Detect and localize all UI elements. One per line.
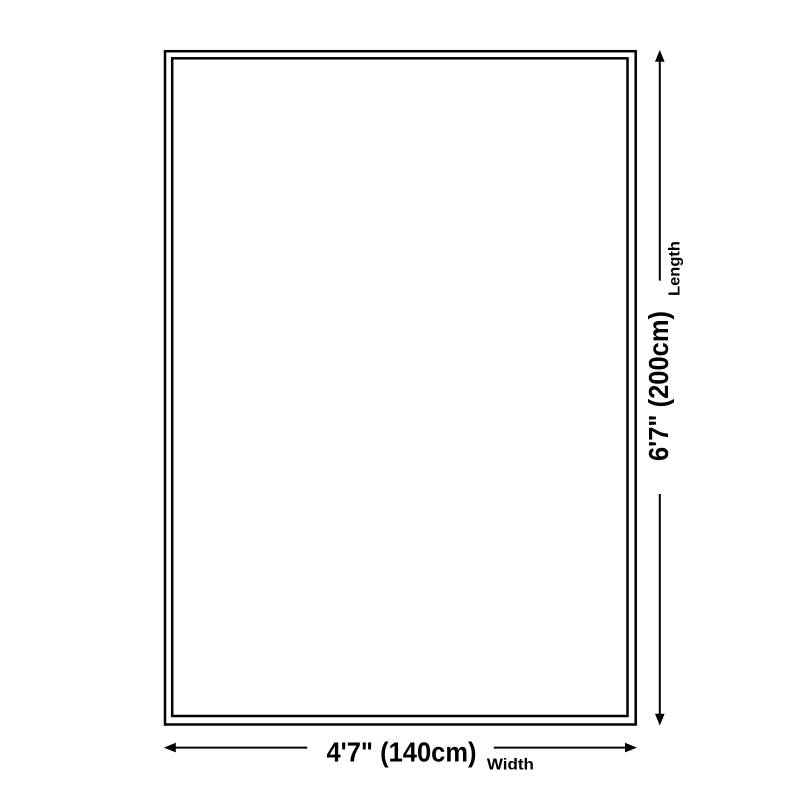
svg-text:4'7" (140cm): 4'7" (140cm) bbox=[327, 737, 477, 768]
svg-text:Length: Length bbox=[667, 241, 684, 296]
svg-text:Width: Width bbox=[487, 756, 534, 773]
svg-text:6'7" (200cm): 6'7" (200cm) bbox=[643, 311, 674, 461]
